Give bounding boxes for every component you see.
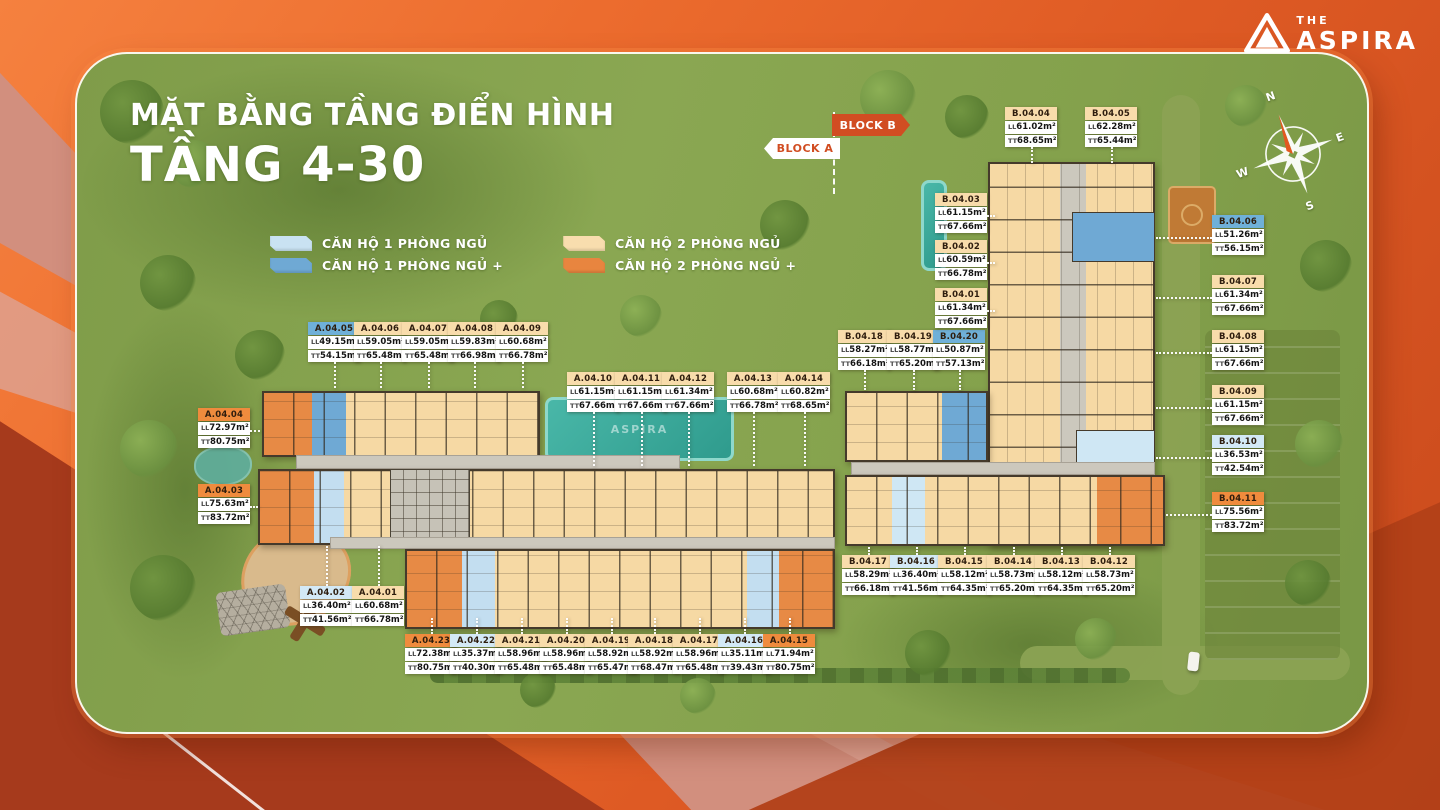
leader-line xyxy=(753,412,755,466)
leader-line xyxy=(864,370,866,390)
leader-line xyxy=(611,618,613,634)
unit-id: B.04.16 xyxy=(890,555,942,568)
unit-label-A.04.14: A.04.14LL60.82m²TT68.65m² xyxy=(778,372,830,412)
legend: CĂN HỘ 1 PHÒNG NGỦCĂN HỘ 1 PHÒNG NGỦ +CĂ… xyxy=(270,236,796,273)
tree xyxy=(120,420,178,478)
unit-area-ll: LL50.87m² xyxy=(933,344,985,357)
unit-id: B.04.02 xyxy=(935,240,987,253)
unit-id: A.04.10 xyxy=(567,372,619,385)
unit-area-ll: LL60.59m² xyxy=(935,254,987,267)
unit-area-ll: LL61.15m² xyxy=(1212,344,1264,357)
unit-label-B.04.09: B.04.09LL61.15m²TT67.66m² xyxy=(1212,385,1264,425)
unit-label-B.04.15: B.04.15LL58.12m²TT64.35m² xyxy=(938,555,990,595)
unit-id: A.04.11 xyxy=(615,372,667,385)
leader-line xyxy=(1061,547,1063,555)
unit-area-tt: TT66.78m² xyxy=(935,268,987,281)
leader-line xyxy=(250,506,258,508)
unit-area-tt: TT64.35m² xyxy=(1035,583,1087,596)
leader-line xyxy=(789,618,791,634)
logo-triangle-icon xyxy=(1244,13,1290,53)
leader-line xyxy=(641,412,643,466)
unit-area-tt: TT67.66m² xyxy=(615,400,667,413)
block-b-unit-lightblue xyxy=(1076,430,1155,464)
leader-line xyxy=(688,412,690,466)
tree xyxy=(945,95,989,139)
unit-area-tt: TT65.20m² xyxy=(1083,583,1135,596)
leader-line xyxy=(1031,147,1033,163)
unit-label-B.04.05: B.04.05LL62.28m²TT65.44m² xyxy=(1085,107,1137,147)
logo-aspira: ASPIRA xyxy=(1296,28,1418,53)
block-a-tag: BLOCK A xyxy=(764,138,840,159)
leader-line xyxy=(1156,407,1212,409)
leader-line xyxy=(1156,352,1212,354)
leader-line xyxy=(1156,457,1212,459)
unit-id: A.04.14 xyxy=(778,372,830,385)
car xyxy=(1187,651,1200,671)
unit-id: B.04.14 xyxy=(987,555,1039,568)
unit-area-ll: LL59.05m² xyxy=(354,336,406,349)
tree xyxy=(1285,560,1331,606)
page-title: MẶT BẰNG TẦNG ĐIỂN HÌNH TẦNG 4-30 xyxy=(130,98,614,193)
block-b-west-wing xyxy=(845,391,988,462)
leader-line xyxy=(987,215,995,217)
block-b-south-wing xyxy=(845,475,1165,546)
unit-area-ll: LL71.94m² xyxy=(763,648,815,661)
unit-area-ll: LL36.40m² xyxy=(300,600,352,613)
unit-area-ll: LL49.15m² xyxy=(308,336,360,349)
unit-id: B.04.03 xyxy=(935,193,987,206)
leader-line xyxy=(1166,514,1212,516)
unit-area-tt: TT65.44m² xyxy=(1085,135,1137,148)
unit-id: B.04.13 xyxy=(1035,555,1087,568)
block-a-mid-wing xyxy=(258,469,835,545)
leader-line xyxy=(987,262,995,264)
unit-area-ll: LL58.29m² xyxy=(842,569,894,582)
unit-area-ll: LL75.63m² xyxy=(198,498,250,511)
unit-area-ll: LL61.02m² xyxy=(1005,121,1057,134)
leader-line xyxy=(804,412,806,466)
tree xyxy=(520,672,556,708)
unit-label-B.04.14: B.04.14LL58.73m²TT65.20m² xyxy=(987,555,1039,595)
tree xyxy=(130,555,196,621)
pool-watermark: ASPIRA xyxy=(611,423,669,436)
unit-area-tt: TT57.13m² xyxy=(933,358,985,371)
unit-label-A.04.08: A.04.08LL59.83m²TT66.98m² xyxy=(448,322,500,362)
unit-area-ll: LL60.68m² xyxy=(496,336,548,349)
unit-area-tt: TT80.75m² xyxy=(763,662,815,675)
unit-label-B.04.12: B.04.12LL58.73m²TT65.20m² xyxy=(1083,555,1135,595)
unit-label-A.04.02: A.04.02LL36.40m²TT41.56m² xyxy=(300,586,352,626)
unit-id: B.04.07 xyxy=(1212,275,1264,288)
leader-line xyxy=(378,546,380,586)
leader-line xyxy=(1013,547,1015,555)
block-b-tag: BLOCK B xyxy=(832,114,910,136)
leader-line xyxy=(916,547,918,555)
unit-id: A.04.02 xyxy=(300,586,352,599)
unit-area-ll: LL60.68m² xyxy=(727,386,779,399)
unit-id: A.04.12 xyxy=(662,372,714,385)
unit-area-tt: TT67.66m² xyxy=(1212,303,1264,316)
unit-id: B.04.12 xyxy=(1083,555,1135,568)
unit-area-ll: LL58.73m² xyxy=(1083,569,1135,582)
leader-line xyxy=(521,618,523,634)
tree xyxy=(1075,618,1117,660)
leader-line xyxy=(654,618,656,634)
corridor xyxy=(330,537,835,549)
unit-label-A.04.09: A.04.09LL60.68m²TT66.78m² xyxy=(496,322,548,362)
unit-area-ll: LL36.53m² xyxy=(1212,449,1264,462)
leader-line xyxy=(326,546,328,586)
unit-id: A.04.04 xyxy=(198,408,250,421)
unit-area-tt: TT64.35m² xyxy=(938,583,990,596)
unit-label-A.04.11: A.04.11LL61.15m²TT67.66m² xyxy=(615,372,667,412)
unit-area-ll: LL59.05m² xyxy=(402,336,454,349)
title-line1: MẶT BẰNG TẦNG ĐIỂN HÌNH xyxy=(130,98,614,133)
unit-area-ll: LL61.34m² xyxy=(935,302,987,315)
brand-logo: THE ASPIRA xyxy=(1244,13,1418,53)
unit-area-ll: LL61.15m² xyxy=(615,386,667,399)
unit-area-tt: TT83.72m² xyxy=(198,512,250,525)
poster: ASPIRA BLOCK B BLOCK A A.04.05LL49.15m²T… xyxy=(0,0,1440,810)
unit-area-ll: LL60.82m² xyxy=(778,386,830,399)
unit-area-tt: TT67.66m² xyxy=(1212,358,1264,371)
unit-id: B.04.15 xyxy=(938,555,990,568)
unit-id: B.04.06 xyxy=(1212,215,1264,228)
unit-id: B.04.11 xyxy=(1212,492,1264,505)
title-line2: TẦNG 4-30 xyxy=(130,137,614,193)
unit-id: A.04.13 xyxy=(727,372,779,385)
leader-line xyxy=(431,618,433,634)
unit-area-tt: TT54.15m² xyxy=(308,350,360,363)
unit-label-B.04.01: B.04.01LL61.34m²TT67.66m² xyxy=(935,288,987,328)
tree xyxy=(1295,420,1343,468)
tree xyxy=(620,295,662,337)
unit-id: B.04.08 xyxy=(1212,330,1264,343)
unit-area-ll: LL59.83m² xyxy=(448,336,500,349)
unit-area-tt: TT67.66m² xyxy=(1212,413,1264,426)
unit-area-ll: LL61.15m² xyxy=(567,386,619,399)
unit-area-tt: TT68.65m² xyxy=(1005,135,1057,148)
unit-area-tt: TT65.48m² xyxy=(354,350,406,363)
leader-line xyxy=(964,547,966,555)
unit-id: B.04.04 xyxy=(1005,107,1057,120)
tree xyxy=(905,630,951,676)
unit-area-ll: LL61.15m² xyxy=(935,207,987,220)
leader-line xyxy=(593,412,595,466)
leader-line xyxy=(250,430,260,432)
tree xyxy=(1300,240,1352,292)
corridor xyxy=(851,462,1155,475)
unit-label-B.04.17: B.04.17LL58.29m²TT66.18m² xyxy=(842,555,894,595)
unit-area-tt: TT56.15m² xyxy=(1212,243,1264,256)
tree xyxy=(680,678,716,714)
block-b-unit-blue xyxy=(1072,212,1155,262)
unit-area-tt: TT66.78m² xyxy=(496,350,548,363)
unit-area-ll: LL62.28m² xyxy=(1085,121,1137,134)
legend-swatch-1brp xyxy=(270,258,312,273)
unit-label-B.04.02: B.04.02LL60.59m²TT66.78m² xyxy=(935,240,987,280)
unit-area-ll: LL61.15m² xyxy=(1212,399,1264,412)
unit-label-A.04.01: A.04.01LL60.68m²TT66.78m² xyxy=(352,586,404,626)
unit-label-A.04.07: A.04.07LL59.05m²TT65.48m² xyxy=(402,322,454,362)
unit-label-B.04.11: B.04.11LL75.56m²TT83.72m² xyxy=(1212,492,1264,532)
sport-court xyxy=(1168,186,1216,244)
unit-area-ll: LL58.12m² xyxy=(938,569,990,582)
leader-line xyxy=(1111,147,1113,163)
leader-line xyxy=(744,618,746,634)
unit-label-A.04.04: A.04.04LL72.97m²TT80.75m² xyxy=(198,408,250,448)
unit-area-tt: TT65.48m² xyxy=(402,350,454,363)
unit-id: B.04.17 xyxy=(842,555,894,568)
road-vertical xyxy=(1162,95,1200,695)
unit-label-B.04.03: B.04.03LL61.15m²TT67.66m² xyxy=(935,193,987,233)
geodesic-canopy xyxy=(215,583,290,636)
legend-label: CĂN HỘ 2 PHÒNG NGỦ xyxy=(615,236,781,251)
unit-area-tt: TT67.66m² xyxy=(662,400,714,413)
unit-area-tt: TT66.18m² xyxy=(842,583,894,596)
unit-area-ll: LL58.73m² xyxy=(987,569,1039,582)
leader-line xyxy=(1156,297,1212,299)
unit-area-ll: LL58.27m² xyxy=(838,344,890,357)
unit-area-ll: LL51.26m² xyxy=(1212,229,1264,242)
block-a-bottom-wing xyxy=(405,549,835,629)
unit-id: B.04.10 xyxy=(1212,435,1264,448)
leader-line xyxy=(1156,237,1212,239)
unit-area-ll: LL61.34m² xyxy=(1212,289,1264,302)
unit-area-tt: TT80.75m² xyxy=(198,436,250,449)
unit-id: A.04.07 xyxy=(402,322,454,335)
block-a-core xyxy=(390,469,470,545)
unit-area-tt: TT65.20m² xyxy=(987,583,1039,596)
leader-line xyxy=(566,618,568,634)
legend-item: CĂN HỘ 1 PHÒNG NGỦ + xyxy=(270,258,503,273)
unit-area-tt: TT42.54m² xyxy=(1212,463,1264,476)
unit-id: A.04.05 xyxy=(308,322,360,335)
corridor xyxy=(296,455,680,469)
unit-id: A.04.15 xyxy=(763,634,815,647)
unit-label-A.04.12: A.04.12LL61.34m²TT67.66m² xyxy=(662,372,714,412)
block-a-top-wing xyxy=(262,391,540,457)
unit-label-B.04.20: B.04.20LL50.87m²TT57.13m² xyxy=(933,330,985,370)
unit-id: A.04.09 xyxy=(496,322,548,335)
unit-area-tt: TT67.66m² xyxy=(935,221,987,234)
unit-area-ll: LL58.12m² xyxy=(1035,569,1087,582)
unit-id: A.04.08 xyxy=(448,322,500,335)
legend-item: CĂN HỘ 2 PHÒNG NGỦ xyxy=(563,236,796,251)
legend-item: CĂN HỘ 2 PHÒNG NGỦ + xyxy=(563,258,796,273)
leader-line xyxy=(476,618,478,634)
legend-label: CĂN HỘ 1 PHÒNG NGỦ xyxy=(322,236,488,251)
unit-id: B.04.19 xyxy=(887,330,939,343)
unit-label-A.04.03: A.04.03LL75.63m²TT83.72m² xyxy=(198,484,250,524)
unit-label-B.04.10: B.04.10LL36.53m²TT42.54m² xyxy=(1212,435,1264,475)
unit-label-B.04.18: B.04.18LL58.27m²TT66.18m² xyxy=(838,330,890,370)
unit-id: A.04.01 xyxy=(352,586,404,599)
leader-line xyxy=(522,362,524,388)
legend-swatch-2brp xyxy=(563,258,605,273)
unit-id: B.04.20 xyxy=(933,330,985,343)
unit-area-tt: TT66.18m² xyxy=(838,358,890,371)
legend-swatch-1br xyxy=(270,236,312,251)
unit-area-tt: TT66.78m² xyxy=(352,614,404,627)
tree xyxy=(140,255,196,311)
unit-label-A.04.15: A.04.15LL71.94m²TT80.75m² xyxy=(763,634,815,674)
leader-line xyxy=(380,362,382,388)
unit-area-tt: TT83.72m² xyxy=(1212,520,1264,533)
unit-label-B.04.04: B.04.04LL61.02m²TT68.65m² xyxy=(1005,107,1057,147)
legend-swatch-2br xyxy=(563,236,605,251)
unit-area-ll: LL60.68m² xyxy=(352,600,404,613)
unit-area-tt: TT67.66m² xyxy=(567,400,619,413)
unit-label-B.04.07: B.04.07LL61.34m²TT67.66m² xyxy=(1212,275,1264,315)
unit-area-tt: TT68.65m² xyxy=(778,400,830,413)
unit-label-A.04.05: A.04.05LL49.15m²TT54.15m² xyxy=(308,322,360,362)
unit-area-ll: LL36.40m² xyxy=(890,569,942,582)
unit-label-A.04.13: A.04.13LL60.68m²TT66.78m² xyxy=(727,372,779,412)
unit-area-tt: TT65.20m² xyxy=(887,358,939,371)
legend-label: CĂN HỘ 1 PHÒNG NGỦ + xyxy=(322,258,503,273)
unit-label-B.04.19: B.04.19LL58.77m²TT65.20m² xyxy=(887,330,939,370)
unit-area-tt: TT66.78m² xyxy=(727,400,779,413)
legend-item: CĂN HỘ 1 PHÒNG NGỦ xyxy=(270,236,503,251)
unit-label-A.04.06: A.04.06LL59.05m²TT65.48m² xyxy=(354,322,406,362)
unit-area-tt: TT67.66m² xyxy=(935,316,987,329)
leader-line xyxy=(959,370,961,390)
unit-id: B.04.01 xyxy=(935,288,987,301)
leader-line xyxy=(868,547,870,555)
tree xyxy=(235,330,285,380)
unit-label-B.04.06: B.04.06LL51.26m²TT56.15m² xyxy=(1212,215,1264,255)
legend-label: CĂN HỘ 2 PHÒNG NGỦ + xyxy=(615,258,796,273)
unit-id: A.04.06 xyxy=(354,322,406,335)
unit-id: B.04.09 xyxy=(1212,385,1264,398)
unit-id: B.04.05 xyxy=(1085,107,1137,120)
unit-label-B.04.16: B.04.16LL36.40m²TT41.56m² xyxy=(890,555,942,595)
unit-id: A.04.03 xyxy=(198,484,250,497)
unit-area-ll: LL61.34m² xyxy=(662,386,714,399)
unit-label-B.04.08: B.04.08LL61.15m²TT67.66m² xyxy=(1212,330,1264,370)
unit-area-ll: LL75.56m² xyxy=(1212,506,1264,519)
leader-line xyxy=(334,362,336,388)
leader-line xyxy=(987,310,995,312)
unit-area-tt: TT41.56m² xyxy=(300,614,352,627)
unit-area-tt: TT66.98m² xyxy=(448,350,500,363)
unit-id: B.04.18 xyxy=(838,330,890,343)
unit-label-B.04.13: B.04.13LL58.12m²TT64.35m² xyxy=(1035,555,1087,595)
unit-area-tt: TT41.56m² xyxy=(890,583,942,596)
leader-line xyxy=(699,618,701,634)
unit-area-ll: LL58.77m² xyxy=(887,344,939,357)
unit-label-A.04.10: A.04.10LL61.15m²TT67.66m² xyxy=(567,372,619,412)
unit-area-ll: LL72.97m² xyxy=(198,422,250,435)
leader-line xyxy=(474,362,476,388)
leader-line xyxy=(913,370,915,390)
logo-the: THE xyxy=(1296,15,1418,26)
leader-line xyxy=(428,362,430,388)
leader-line xyxy=(1109,547,1111,555)
